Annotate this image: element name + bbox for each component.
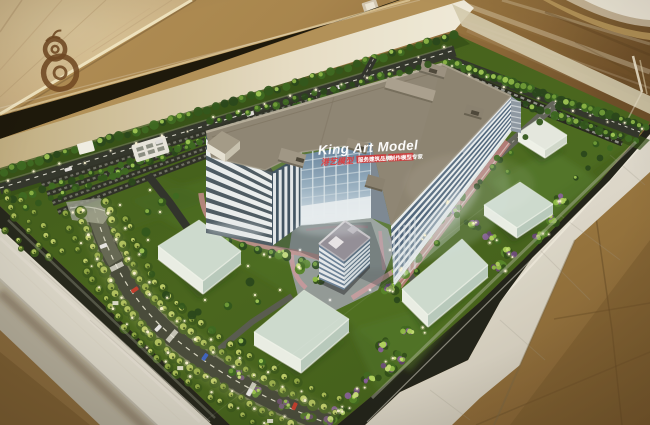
svg-text:港艺模型: 港艺模型 [320, 155, 355, 167]
